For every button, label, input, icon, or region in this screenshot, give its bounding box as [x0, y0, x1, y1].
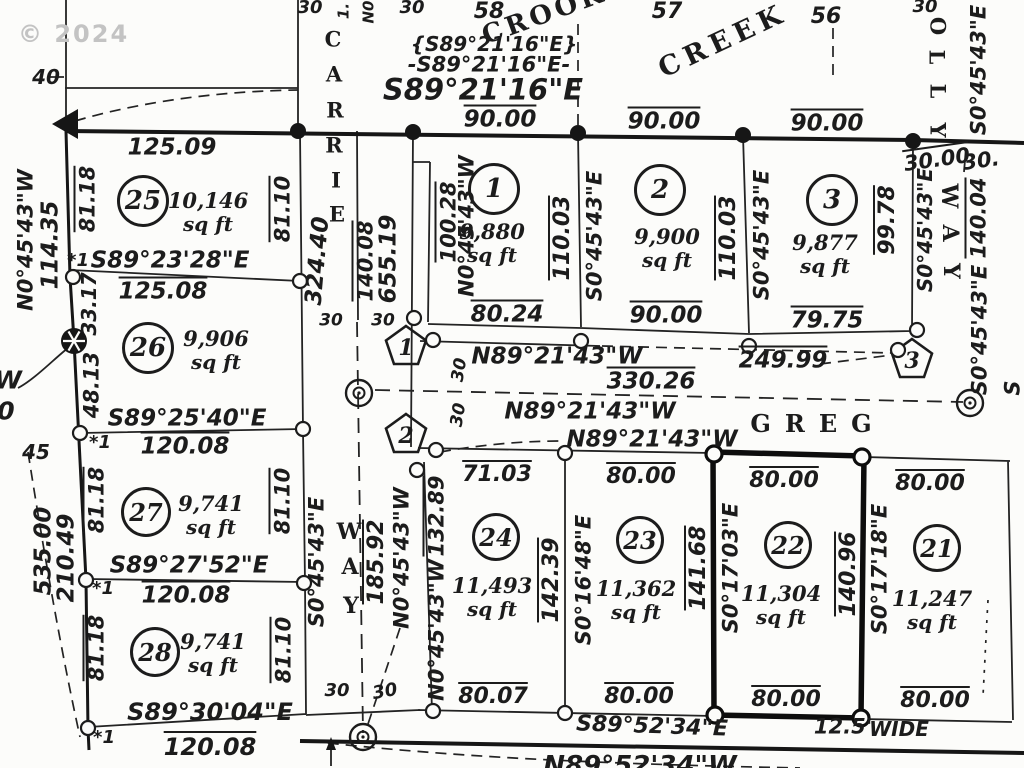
monument-center-icon: [968, 401, 971, 404]
lot-number: 1: [485, 174, 503, 204]
lot-area-unit: sq ft: [800, 255, 850, 277]
bearing-label: N0°45'43"W: [427, 559, 448, 701]
dimension-label: 81.10: [273, 176, 294, 242]
set-point-icon: [891, 343, 905, 357]
pentagon-monument-2: 2: [386, 414, 426, 452]
lot-number-badge: 3: [806, 174, 858, 226]
found-point-icon: [570, 125, 586, 141]
lot-number-badge: 23: [616, 516, 664, 564]
dimension-label: 535.00: [33, 507, 56, 596]
set-point-icon: [79, 573, 93, 587]
bearing-label: S0°16'48"E: [574, 515, 595, 645]
dimension-label: 81.18: [87, 615, 108, 681]
dimension-label: 210.49: [56, 514, 79, 603]
dimension-label: 655.19: [378, 215, 401, 304]
lot-area: 9,906sq ft: [183, 327, 249, 373]
bearing-label: WIDE: [869, 719, 929, 739]
bearing-label: N89°21'43"W: [504, 401, 675, 424]
dimension-label: 80.00: [751, 689, 821, 711]
lot-number: 2: [651, 175, 669, 205]
dimension-label: 40: [32, 67, 60, 87]
dimension-label: 125.09: [128, 137, 217, 160]
dash-dot-curve: [983, 600, 988, 696]
dimension-label: 81.18: [78, 166, 99, 232]
set-point-icon: [410, 463, 424, 477]
dimension-label: 80.00: [606, 466, 676, 488]
street-name-letter: W: [938, 184, 960, 209]
bearing-label: S0°45'43"E: [969, 5, 990, 135]
lot-area-value: 11,493: [452, 574, 532, 598]
lot-area: 9,877sq ft: [792, 231, 858, 277]
plat-map: 1 2 3 © 2024 4058575630301.N0{S89°21'16"…: [0, 0, 1024, 768]
found-point-icon: [405, 124, 421, 140]
lot-area-value: 11,247: [892, 587, 972, 611]
dimension-label: 140.96: [838, 532, 860, 617]
street-name-letter: R: [326, 100, 343, 121]
dimension-label: 142.39: [541, 538, 563, 623]
dimension-label: 132.89: [427, 475, 448, 556]
lot-area-value: 9,900: [634, 225, 700, 249]
bearing-label: N0°45'43"W: [392, 487, 413, 629]
dimension-label: 30: [399, 0, 424, 17]
street-name-letter: L: [927, 50, 948, 65]
dimension-label: 110.03: [552, 196, 574, 281]
dimension-label: *1: [67, 252, 89, 270]
dimension-label: 48.13: [82, 352, 103, 418]
bearing-label: S89°21'16"E: [383, 76, 583, 105]
lot-number-badge: 21: [913, 524, 961, 572]
lot-corner-icon: [854, 449, 870, 465]
set-point-icon: [407, 311, 421, 325]
street-name-letter: Y: [940, 263, 962, 279]
lot-area: 11,304sq ft: [741, 582, 821, 628]
monument-center-icon: [357, 391, 360, 394]
lot-area-value: 11,304: [741, 582, 821, 606]
dimension-label: 1.: [337, 3, 352, 19]
bearing-label: N0°45'43"W: [16, 169, 37, 311]
lot-area-unit: sq ft: [467, 244, 517, 266]
dimension-label: 33.17: [79, 272, 99, 335]
lot-area-unit: sq ft: [188, 654, 238, 676]
dimension-label: 90.00: [464, 109, 537, 132]
monument-center-icon: [361, 735, 364, 738]
street-name-letter: C: [325, 29, 342, 50]
lot-area-unit: sq ft: [467, 598, 517, 620]
lot-number-badge: 26: [122, 322, 174, 374]
dimension-label: 30: [319, 313, 343, 330]
found-point-icon: [290, 123, 306, 139]
dimension-label: 80.00: [604, 686, 674, 708]
dimension-label: 81.18: [87, 467, 108, 533]
dimension-label: 80.00: [900, 690, 970, 712]
lot-area-value: 9,906: [183, 327, 249, 351]
lot-area-value: 9,741: [178, 492, 244, 516]
set-point-icon: [558, 706, 572, 720]
dimension-label: 120.08: [164, 735, 257, 759]
lot-area-value: 9,877: [792, 231, 858, 255]
street-name-letter: L: [928, 84, 949, 99]
set-point-icon: [429, 443, 443, 457]
dimension-label: 90.00: [630, 305, 703, 328]
dimension-label: 30: [912, 0, 937, 16]
dimension-label: 30: [449, 402, 470, 428]
lot-number-badge: 24: [472, 513, 520, 561]
street-name-letter: E: [329, 204, 345, 225]
lot-area: 9,880sq ft: [459, 220, 525, 266]
lot-number: 22: [771, 531, 804, 560]
bearing-label: S89°52'34"E: [576, 713, 729, 740]
lot-area-value: 9,741: [180, 630, 246, 654]
bearing-label: S: [1003, 380, 1024, 395]
dimension-label: *1: [89, 434, 111, 452]
lot-number: 3: [823, 185, 841, 215]
lot-number-badge: 1: [468, 163, 520, 215]
lot-area: 9,741sq ft: [178, 492, 244, 538]
bearing-label: S0°45'43"E: [915, 168, 935, 292]
bearing-label: W: [0, 368, 22, 393]
dimension-label: 80.00: [895, 473, 965, 495]
bearing-label: S0°17'03"E: [721, 503, 742, 633]
lot-area-value: 11,362: [596, 577, 676, 601]
dimension-label: 249.99: [739, 350, 828, 373]
lot-number: 27: [129, 498, 162, 527]
svg-text:3: 3: [904, 348, 919, 374]
lot-number-badge: 22: [764, 521, 812, 569]
lot-number: 25: [125, 186, 161, 216]
dimension-label: 56: [811, 6, 842, 28]
bearing-label: S0°45'43"E: [752, 170, 773, 300]
lot-area: 11,362sq ft: [596, 577, 676, 623]
street-name-letter: I: [331, 170, 341, 191]
pentagon-monument-1: 1: [386, 326, 426, 364]
street-name-letter: A: [341, 556, 358, 578]
lot-area-value: 10,146: [168, 189, 248, 213]
lot-number-badge: 25: [117, 175, 169, 227]
dimension-label: 120.08: [141, 436, 230, 459]
dimension-label: 57: [652, 1, 683, 23]
lot-number: 26: [130, 333, 166, 363]
lot-area-unit: sq ft: [642, 249, 692, 271]
dimension-label: 30.: [961, 148, 1001, 174]
set-point-icon: [426, 704, 440, 718]
dimension-label: 30: [450, 357, 471, 383]
found-point-icon: [735, 127, 751, 143]
dimension-label: 30: [297, 0, 322, 17]
bearing-label: S89°30'04"E: [127, 700, 293, 724]
svg-text:1: 1: [398, 335, 413, 361]
dimension-label: 79.75: [791, 310, 864, 333]
street-name-letter: O: [928, 17, 949, 35]
bearing-label: S0°45'43"E: [307, 497, 328, 627]
watermark: © 2024: [18, 22, 129, 46]
lot-area-unit: sq ft: [191, 351, 241, 373]
lot-area: 10,146sq ft: [168, 189, 248, 235]
lot-area-unit: sq ft: [186, 516, 236, 538]
dimension-label: 140.08: [356, 220, 377, 301]
street-name-letter: A: [326, 64, 342, 85]
street-name-letter: Y: [928, 123, 949, 138]
dimension-label: 81.10: [273, 468, 294, 534]
dimension-label: 45: [22, 442, 50, 462]
lot-area-unit: sq ft: [756, 606, 806, 628]
set-point-icon: [910, 323, 924, 337]
dimension-label: 30: [371, 681, 399, 703]
lot-area: 11,493sq ft: [452, 574, 532, 620]
dimension-label: 12.5': [814, 717, 872, 738]
lot-area-value: 9,880: [459, 220, 525, 244]
dimension-label: 80.24: [471, 304, 544, 327]
bearing-label: S89°23'28"E: [91, 250, 250, 273]
lot-number-badge: 2: [634, 164, 686, 216]
set-point-icon: [73, 426, 87, 440]
bearing-label: N89°21'43"W: [471, 346, 642, 369]
set-point-icon: [426, 333, 440, 347]
dimension-label: 330.26: [607, 371, 696, 394]
lot-area: 11,247sq ft: [892, 587, 972, 633]
bearing-label: N0: [362, 1, 377, 24]
bearing-label: S0°45'43"E: [970, 265, 991, 395]
lot-number-badge: 27: [121, 487, 171, 537]
dimension-label: *1: [92, 580, 114, 598]
dimension-label: 80.00: [749, 470, 819, 492]
street-name-letter: A: [939, 224, 961, 241]
dimension-label: 0: [0, 399, 15, 424]
svg-text:2: 2: [397, 423, 413, 449]
dimension-label: 90.00: [628, 111, 701, 134]
dimension-label: 99.78: [877, 185, 899, 255]
dimension-label: 141.68: [688, 526, 710, 611]
dimension-label: 71.03: [462, 464, 532, 486]
lot-area-unit: sq ft: [907, 611, 957, 633]
lot-area: 9,900sq ft: [634, 225, 700, 271]
dimension-label: 110.03: [718, 196, 740, 281]
lot-area-unit: sq ft: [611, 601, 661, 623]
street-name-letter: Y: [343, 595, 359, 617]
lot-number: 28: [138, 638, 171, 667]
street-name-letter: R: [325, 135, 342, 156]
lot-area: 9,741sq ft: [180, 630, 246, 676]
dimension-label: 30: [324, 682, 349, 700]
street-name: GREG: [750, 412, 885, 436]
bearing-label: S0°17'18"E: [870, 504, 891, 634]
bearing-label: S89°27'52"E: [110, 555, 269, 578]
lot-number: 21: [920, 534, 953, 563]
dimension-label: 80.07: [458, 686, 528, 708]
lot-number: 23: [623, 526, 656, 555]
bearing-label: N89°52'34"W: [543, 753, 737, 768]
dimension-label: 140.04: [969, 177, 990, 258]
dimension-label: 120.08: [142, 585, 231, 608]
dimension-label: 90.00: [791, 113, 864, 136]
dimension-label: 81.10: [274, 617, 295, 683]
dimension-label: *1: [93, 729, 115, 747]
dimension-label: 185.92: [366, 520, 388, 605]
bearing-label: N89°21'43"W: [566, 429, 737, 452]
lot-number: 24: [479, 523, 512, 552]
bearing-label: S89°25'40"E: [108, 408, 267, 431]
street-name-letter: W: [337, 521, 362, 543]
lot-number-badge: 28: [130, 627, 180, 677]
dimension-label: 30: [371, 313, 395, 330]
found-point-icon: [905, 133, 921, 149]
dimension-label: 114.35: [40, 201, 63, 290]
lot-area-unit: sq ft: [183, 213, 233, 235]
set-point-icon: [296, 422, 310, 436]
dimension-label: 125.08: [119, 281, 208, 304]
bearing-label: S0°45'43"E: [585, 171, 606, 301]
